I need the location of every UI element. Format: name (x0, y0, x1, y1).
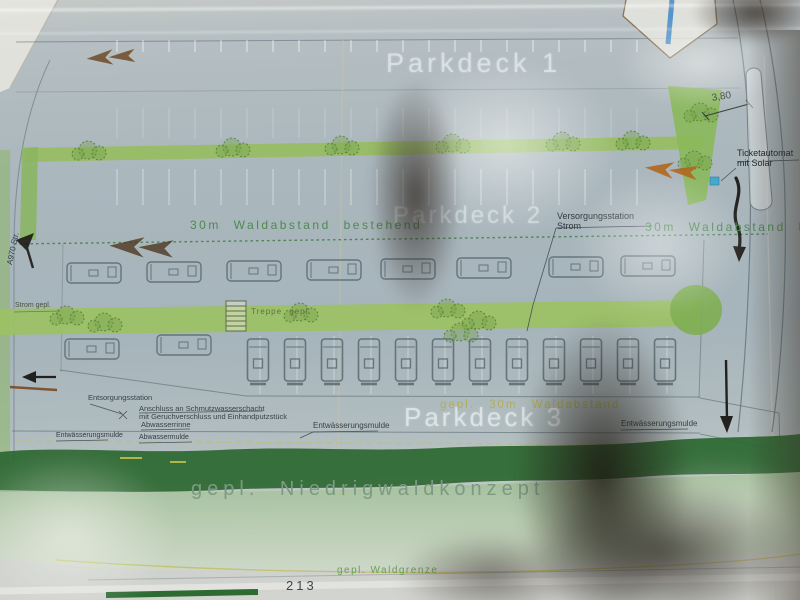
label-waldgrenze: gepl. Waldgrenze (337, 565, 438, 576)
label-treppe: Treppe gepl. (251, 308, 312, 317)
label-versorgung-line2: Strom (557, 222, 634, 232)
label-entwaesserungsmulde-c: Entwässerungsmulde (313, 422, 389, 431)
label-abwasserrinne: Abwasserrinne (141, 421, 191, 429)
label-entwaesserungsmulde-d: Entwässerungsmulde (621, 420, 697, 429)
label-ticketautomat: Ticketautomat mit Solar (737, 149, 793, 169)
label-gepl-waldabstand: gepl. 30m Waldabstand (440, 399, 620, 412)
label-versorgungsstation: Versorgungsstation Strom (557, 212, 634, 232)
label-parkdeck1: Parkdeck 1 (386, 49, 561, 79)
label-abwassermulde: Abwassermulde (139, 434, 189, 442)
photo-of-parking-site-plan: Parkdeck 1 Parkdeck 2 Parkdeck 3 30m Wal… (0, 0, 800, 600)
label-strom-gepl: Strom gepl. (15, 302, 51, 310)
label-dimension-road-width: 3,80 (711, 90, 732, 104)
plan-labels: Parkdeck 1 Parkdeck 2 Parkdeck 3 30m Wal… (0, 0, 800, 600)
label-entwaesserungsmulde-a: Entwässerungsmulde (56, 432, 123, 440)
label-waldabstand-left: 30m Waldabstand bestehend (190, 219, 422, 232)
label-waldabstand-right: 30m Waldabstand bestehend (645, 221, 800, 234)
label-niedrigwaldkonzept: gepl. Niedrigwaldkonzept (191, 478, 544, 500)
label-road-left: A970 Str. (6, 232, 21, 266)
label-entsorgungsstation: Entsorgungsstation (88, 394, 152, 402)
label-ticket-line2: mit Solar (737, 159, 793, 169)
label-parcel-number: 213 (286, 579, 317, 593)
